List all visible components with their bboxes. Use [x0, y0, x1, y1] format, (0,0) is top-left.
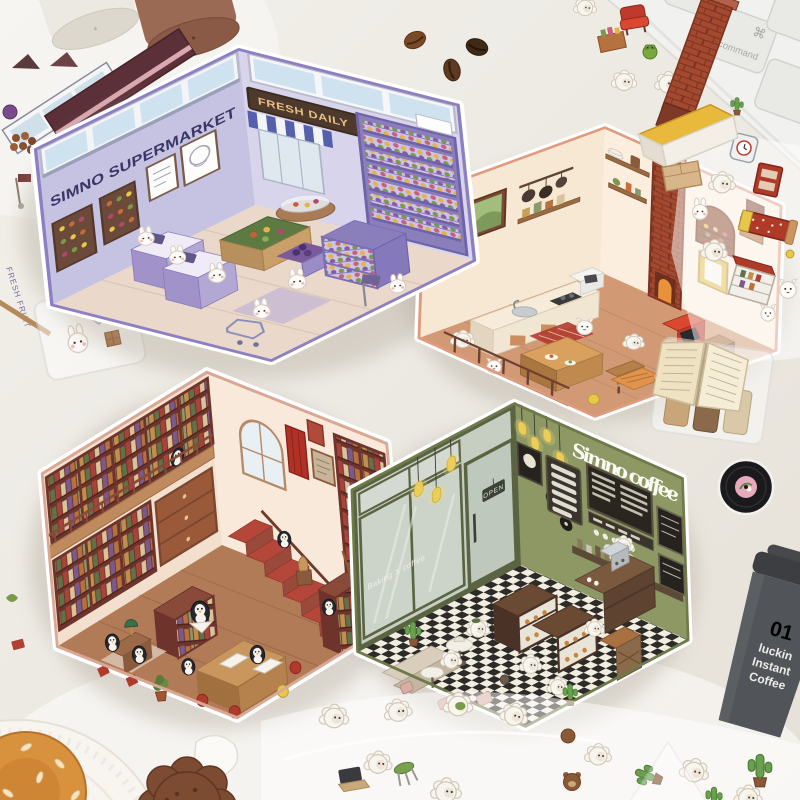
- sheep-sticker: [611, 70, 637, 90]
- bell-sticker: [786, 250, 794, 258]
- frog-sticker: [643, 45, 657, 59]
- red-cabinet-sticker: [753, 163, 783, 197]
- tiny-stickers-left: [6, 594, 25, 650]
- coffee-bean: [464, 36, 490, 58]
- bear-sticker: [563, 772, 581, 791]
- cat-sticker: [760, 305, 775, 322]
- desk-scene: ⌘ command: [0, 0, 800, 800]
- acorn-sticker: [561, 729, 575, 743]
- box-sticker: [662, 161, 702, 191]
- sheep-sticker: [573, 0, 596, 16]
- knot-sticker: [3, 105, 17, 119]
- coffee-bean: [402, 28, 429, 52]
- coffee-bean: [441, 57, 462, 82]
- door: OPEN: [465, 440, 516, 586]
- vinyl-sticker: [719, 460, 773, 514]
- coffee-cup: 01 luckin Instant Coffee: [709, 540, 800, 740]
- right-sticker-sheet: [672, 126, 800, 361]
- cat-sticker: [779, 279, 797, 298]
